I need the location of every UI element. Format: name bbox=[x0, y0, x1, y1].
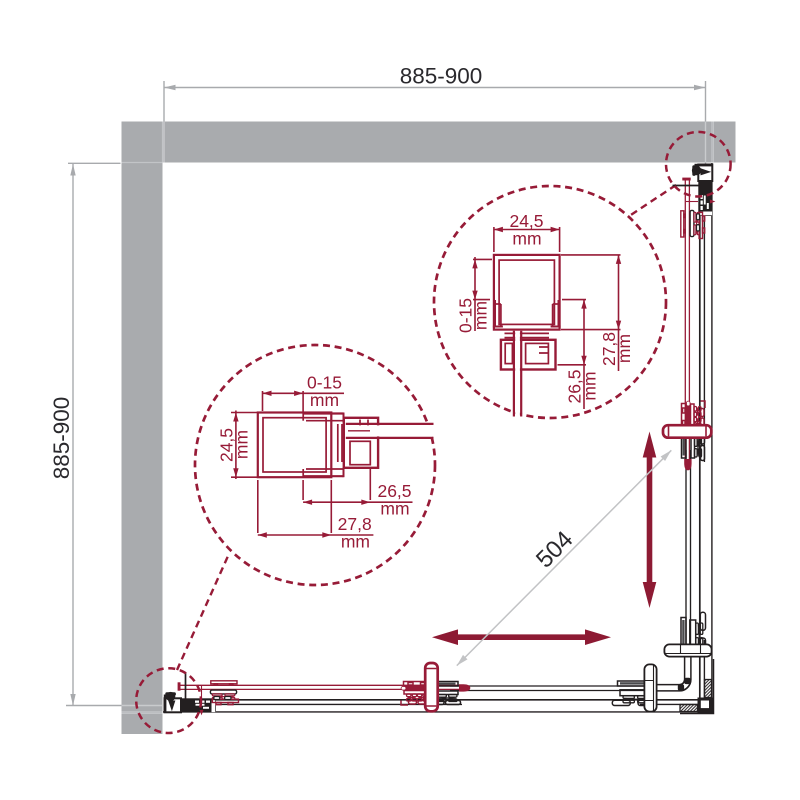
svg-text:504: 504 bbox=[531, 526, 578, 573]
svg-text:mm: mm bbox=[341, 532, 370, 552]
svg-text:mm: mm bbox=[380, 499, 409, 519]
svg-text:885-900: 885-900 bbox=[400, 64, 483, 89]
svg-text:mm: mm bbox=[580, 371, 600, 400]
svg-text:mm: mm bbox=[614, 334, 634, 363]
svg-text:mm: mm bbox=[471, 301, 491, 330]
svg-text:885-900: 885-900 bbox=[49, 397, 74, 480]
svg-text:mm: mm bbox=[310, 390, 339, 410]
svg-text:mm: mm bbox=[512, 229, 541, 249]
svg-text:mm: mm bbox=[231, 430, 251, 459]
